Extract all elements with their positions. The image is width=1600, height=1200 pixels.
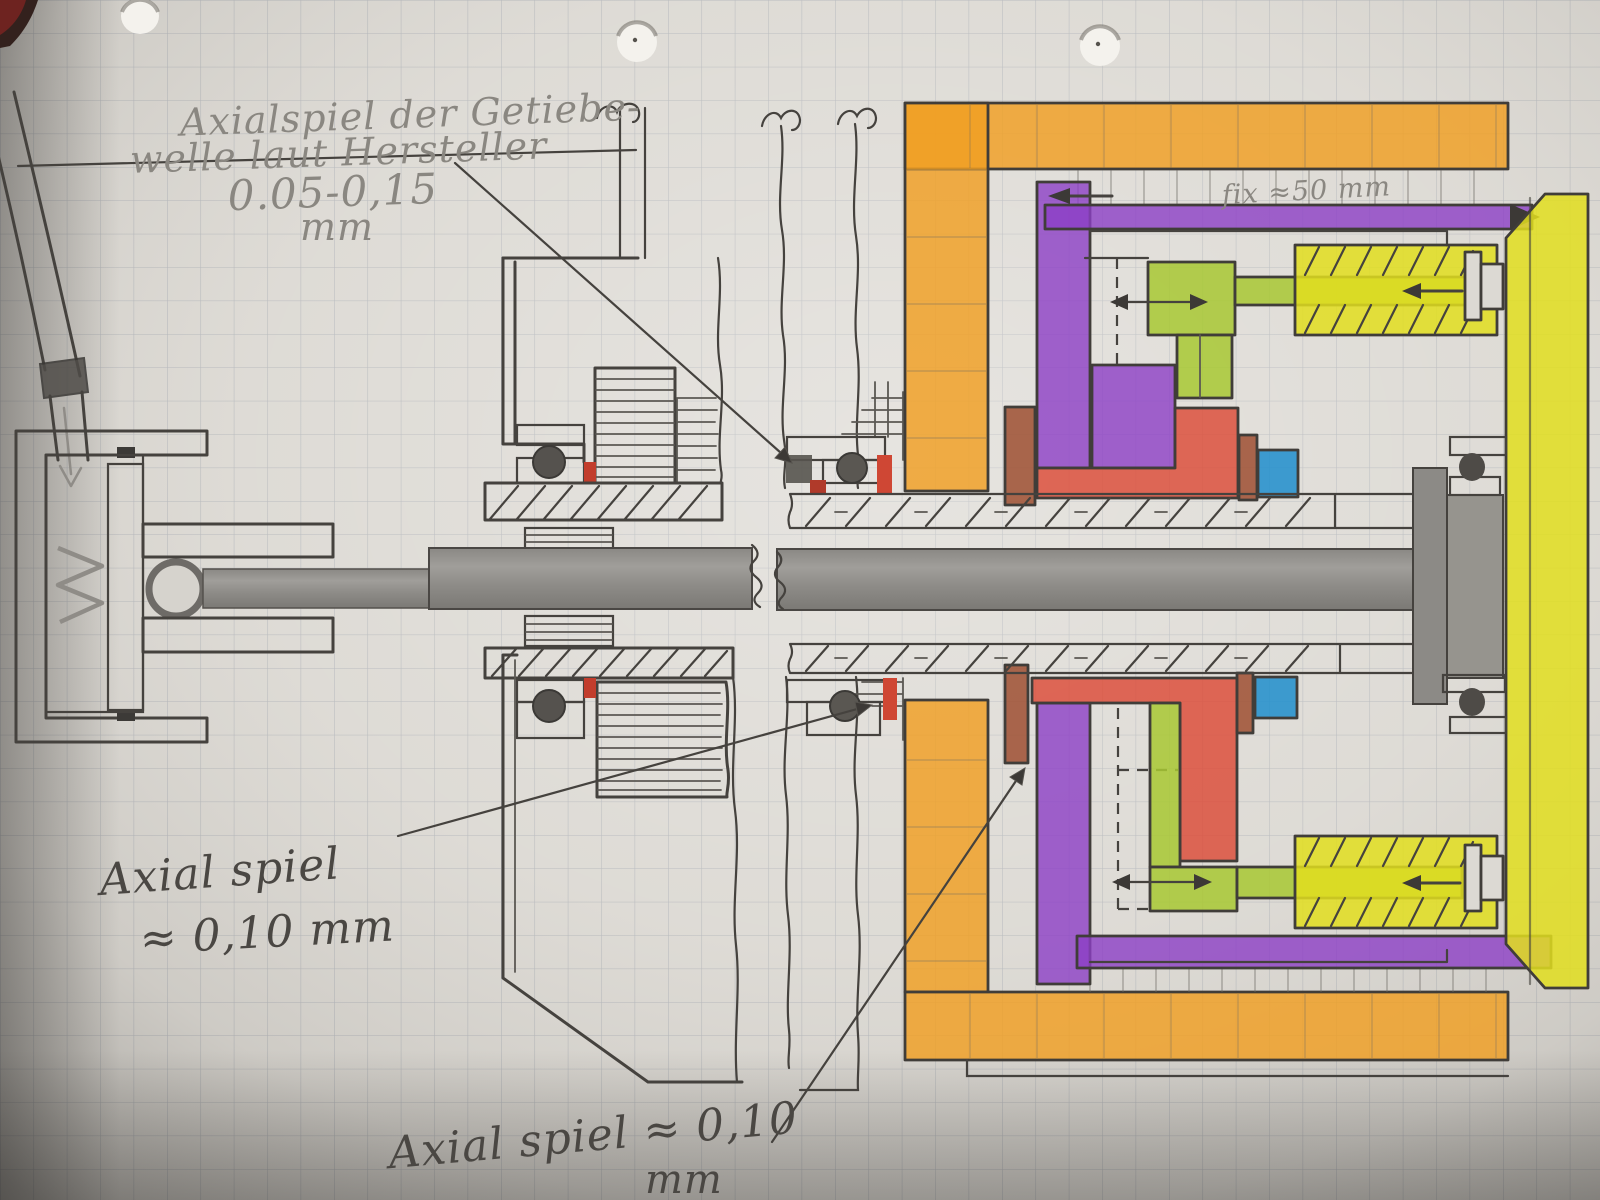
end-hub [1447, 495, 1503, 678]
punch-hole-3 [1080, 26, 1120, 66]
brown-seal-upper-left [1005, 407, 1035, 505]
blue-block-upper [1258, 450, 1298, 497]
orange-housing-bottom-bar [905, 992, 1508, 1060]
photographed-sketch-page: Axialspiel der Getiebe- welle laut Herst… [0, 0, 1600, 1200]
purple-slider-bar-lower [1077, 936, 1551, 968]
shaft-right-segment [777, 549, 1413, 610]
purple-block-upper [1092, 365, 1175, 468]
threaded-bore-upper [1295, 245, 1503, 335]
red-seal-lower [883, 678, 897, 720]
bolt-head-upper [1465, 252, 1481, 320]
yellow-flywheel [1506, 194, 1588, 988]
orange-housing-top-bar [905, 103, 1508, 169]
brown-seal-lower-left [1005, 665, 1028, 763]
purple-slider-bar-upper [1045, 205, 1532, 229]
bearing-upper-right [837, 453, 867, 483]
stop-nub-top [117, 447, 135, 458]
pivot-ball [149, 562, 203, 616]
punch-hole-2 [617, 22, 657, 62]
seal-lower-left [584, 678, 596, 698]
shaft-left-segment [429, 548, 752, 609]
seal-upper-left [584, 462, 596, 483]
blue-block-lower [1255, 677, 1297, 718]
brown-seal-lower-right [1237, 673, 1253, 733]
transmission-shaft [429, 545, 1413, 610]
end-flange [1413, 468, 1447, 704]
sketch-canvas: Axialspiel der Getiebe- welle laut Herst… [0, 0, 1600, 1200]
orange-housing-left-column-lower [905, 700, 988, 992]
green-adjuster-lower [1150, 703, 1180, 867]
brown-seal-upper-right [1239, 435, 1257, 500]
annotation-top-line4: mm [300, 205, 374, 249]
push-rod [203, 569, 429, 608]
bolt-head-lower [1465, 845, 1481, 911]
orange-housing-left-column [905, 103, 988, 491]
threaded-bore-lower [1295, 836, 1503, 928]
red-seal-upper [877, 455, 892, 495]
annotation-bottom-line2: mm [645, 1157, 723, 1200]
